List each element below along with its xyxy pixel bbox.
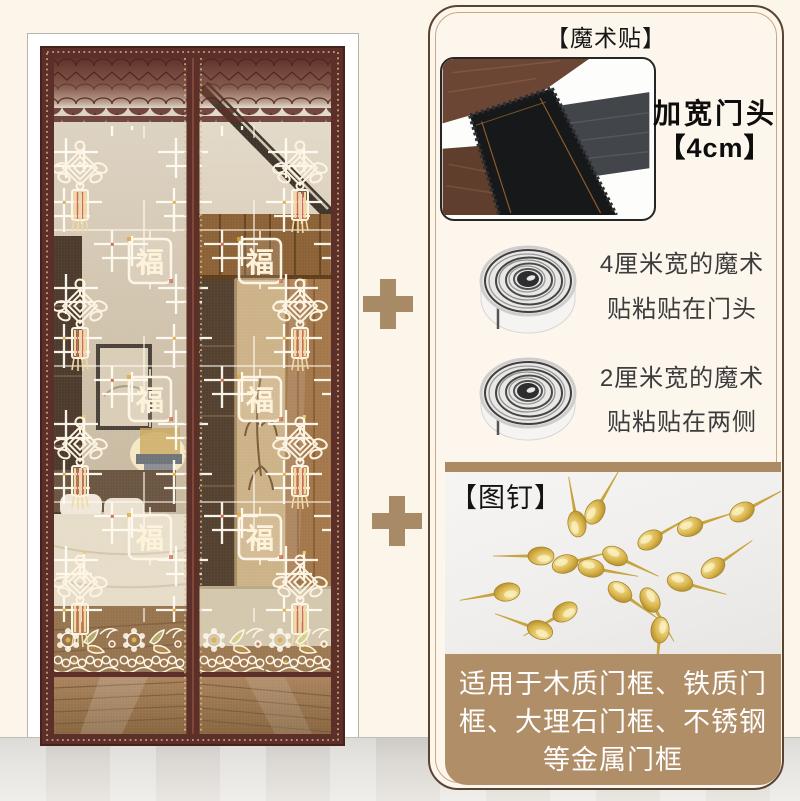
accessories-panel: 【魔术贴】 加宽门头 【4cm】 — [428, 5, 784, 790]
velcro-roll-2cm-photo — [475, 345, 581, 457]
caption-line: 贴粘贴在门头 — [582, 287, 782, 332]
caption-line: 2厘米宽的魔术 — [582, 357, 782, 401]
door-head-width-label: 加宽门头 【4cm】 — [648, 97, 782, 165]
door-frame-compatibility-note: 适用于木质门框、铁质门 框、大理石门框、不锈钢 等金属门框 — [445, 654, 781, 785]
plus-icon — [363, 279, 413, 329]
velcro-closeup-photo — [440, 57, 656, 221]
pushpin-section: 【图钉】 适用于木质门框、铁质门 框、大理石门框、不锈钢 等金属门框 — [445, 462, 781, 785]
screen-door-photo: 福 — [40, 46, 345, 746]
pushpin-section-title: 【图钉】 — [450, 476, 562, 515]
plus-icon — [372, 496, 422, 546]
velcro-roll-4cm-caption: 4厘米宽的魔术 贴粘贴在门头 — [582, 242, 782, 332]
caption-line: 贴粘贴在两侧 — [582, 401, 782, 445]
caption-line: 4厘米宽的魔术 — [582, 242, 782, 287]
note-line: 框、大理石门框、不锈钢 — [445, 703, 781, 741]
door-head-size: 【4cm】 — [648, 131, 782, 165]
pushpins-photo: 【图钉】 — [445, 472, 781, 654]
section-divider-band — [445, 462, 781, 472]
screen-door-illustration: 福 — [40, 46, 345, 746]
note-line: 适用于木质门框、铁质门 — [445, 665, 781, 703]
product-image-page: 福 — [0, 0, 800, 800]
velcro-roll-4cm-photo — [475, 235, 581, 347]
door-head-text: 加宽门头 — [648, 97, 782, 131]
velcro-section-title: 【魔术贴】 — [430, 19, 782, 53]
velcro-roll-2cm-caption: 2厘米宽的魔术 贴粘贴在两侧 — [582, 357, 782, 445]
note-line: 等金属门框 — [445, 741, 781, 779]
